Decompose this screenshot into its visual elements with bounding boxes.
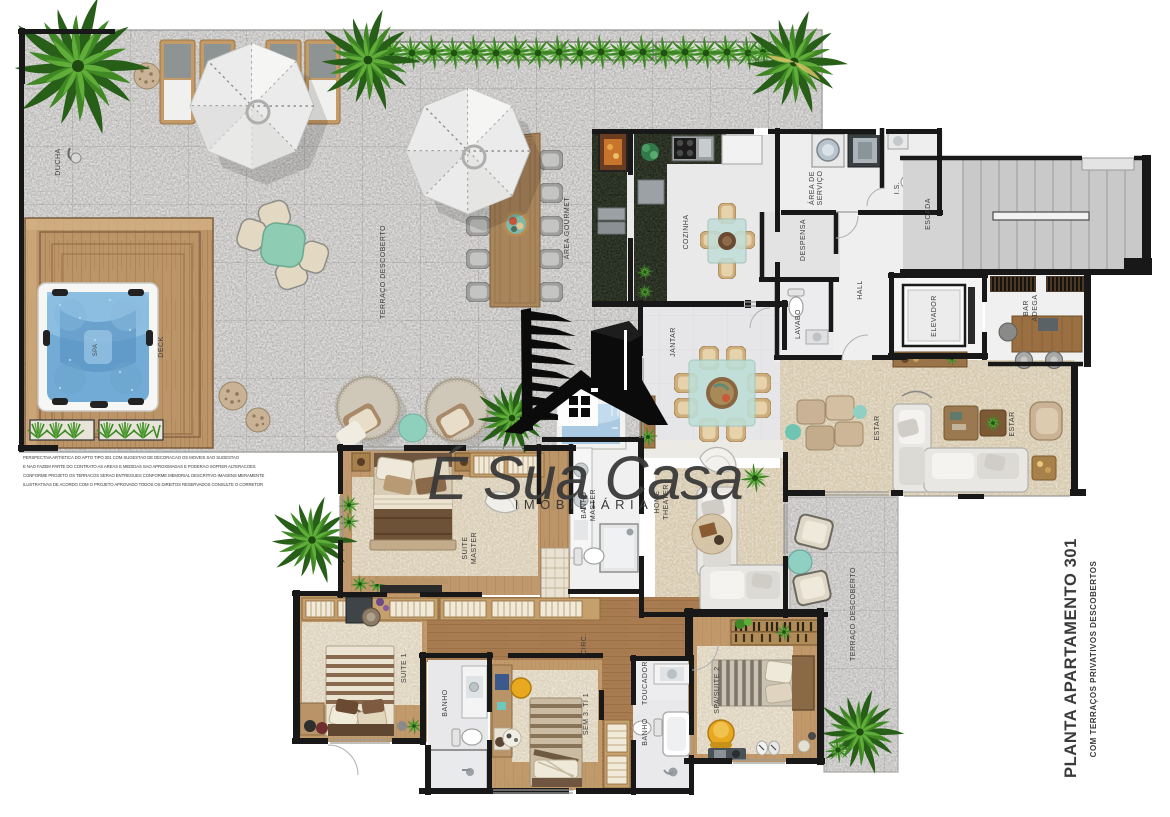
svg-text:CIRC.: CIRC. [581, 633, 588, 655]
svg-text:ELEVADOR: ELEVADOR [931, 295, 938, 337]
svg-text:BANHO: BANHO [642, 718, 649, 745]
svg-text:TOUCADOR: TOUCADOR [642, 661, 649, 705]
svg-text:E NAO FAZEM PARTE DO CONTRATO: E NAO FAZEM PARTE DO CONTRATO AS AREAS E… [23, 464, 256, 469]
svg-text:BAR: BAR [1023, 300, 1030, 316]
svg-text:LAVABO: LAVABO [795, 309, 802, 339]
svg-text:SPA/SUITE 2: SPA/SUITE 2 [714, 666, 721, 713]
svg-text:TERRAÇO DESCOBERTO: TERRAÇO DESCOBERTO [380, 225, 387, 319]
svg-text:ESTAR: ESTAR [874, 415, 881, 440]
svg-text:ÁREA DE: ÁREA DE [807, 171, 816, 205]
svg-text:SEM 3. TI 1: SEM 3. TI 1 [583, 693, 590, 735]
svg-text:SPA: SPA [93, 344, 99, 356]
svg-text:TERRAÇO DESCOBERTO: TERRAÇO DESCOBERTO [850, 567, 857, 661]
svg-text:DECK: DECK [158, 336, 165, 357]
svg-text:PLANTA APARTAMENTO 301: PLANTA APARTAMENTO 301 [1062, 538, 1080, 778]
svg-text:DESPENSA: DESPENSA [800, 219, 807, 261]
svg-text:SUITE: SUITE [462, 536, 469, 559]
svg-text:ÁREA GOURMET: ÁREA GOURMET [562, 197, 571, 260]
svg-text:JANTAR: JANTAR [670, 327, 677, 357]
svg-text:ESCADA: ESCADA [925, 198, 932, 230]
svg-text:I.S.: I.S. [894, 182, 901, 195]
svg-text:SUITE 1: SUITE 1 [401, 653, 408, 683]
svg-text:ILUSTRATIVAS DE ACORDO COM O P: ILUSTRATIVAS DE ACORDO COM O PROJETO APR… [23, 482, 263, 487]
svg-text:COM TERRAÇOS PRIVATIVOS DES: COM TERRAÇOS PRIVATIVOS DESCOBERTOS [1089, 561, 1098, 758]
svg-text:MASTER: MASTER [471, 532, 478, 564]
svg-text:PERSPECTIVA ARTISTICA DO APTO: PERSPECTIVA ARTISTICA DO APTO TIPO 301 C… [23, 455, 240, 460]
svg-text:HALL: HALL [857, 280, 864, 300]
svg-text:IMOBILIÁRIA: IMOBILIÁRIA [515, 497, 654, 512]
svg-text:BANHO: BANHO [442, 689, 449, 716]
svg-text:ADEGA: ADEGA [1032, 294, 1039, 321]
svg-text:ESTAR: ESTAR [1009, 411, 1016, 436]
svg-text:COZINHA: COZINHA [683, 215, 690, 250]
svg-text:DUCHA: DUCHA [55, 148, 62, 175]
svg-text:CONFORME PROJETO OS TERRACOS: CONFORME PROJETO OS TERRACOS SERAO ENTRE… [23, 473, 264, 478]
svg-text:SERVIÇO: SERVIÇO [817, 171, 824, 206]
